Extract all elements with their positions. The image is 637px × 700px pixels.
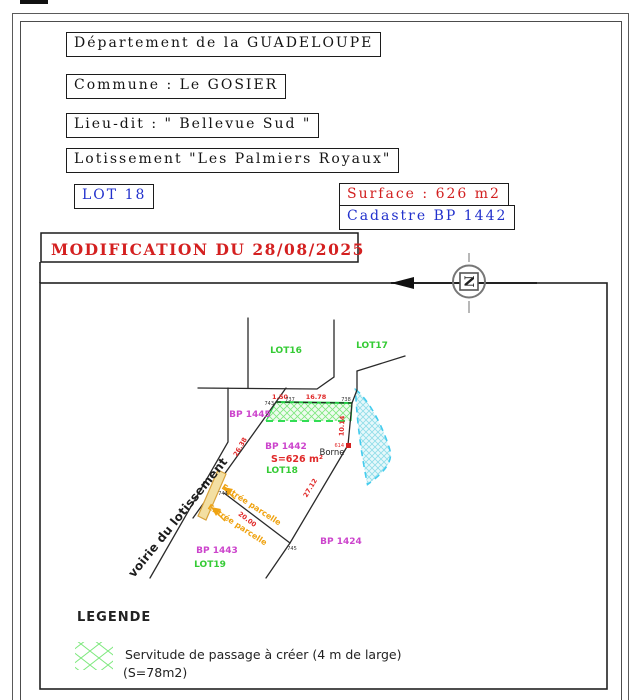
label-lot18: LOT18 <box>266 466 298 476</box>
legend-title: LEGENDE <box>77 610 151 625</box>
borne-marker <box>346 443 351 448</box>
label-bp1445: BP 1445 <box>229 410 271 420</box>
dim-16-78: 16.78 <box>306 393 327 401</box>
north-letter: N <box>460 276 475 288</box>
legend-servitude-swatch <box>75 642 113 670</box>
plan-svg: MODIFICATION DU 28/08/2025 N <box>0 0 637 700</box>
dim-10-14: 10.14 <box>337 415 346 436</box>
point-743: 743 <box>264 401 274 407</box>
point-614: 614 <box>334 443 344 449</box>
hatched-zone-cyan <box>356 390 391 485</box>
label-lot19: LOT19 <box>194 560 226 570</box>
label-bp1424: BP 1424 <box>320 537 362 547</box>
dim-26-38: 26.38 <box>232 436 249 458</box>
point-745: 745 <box>287 546 297 552</box>
point-744: 744 <box>218 491 228 497</box>
label-bp1442: BP 1442 <box>265 442 307 452</box>
legend-servitude-text: Servitude de passage à créer (4 m de lar… <box>125 647 402 662</box>
label-borne: Borne <box>320 448 345 458</box>
north-arrow-icon: N <box>391 253 537 313</box>
label-bp1443: BP 1443 <box>196 546 238 556</box>
point-738: 738 <box>341 397 351 403</box>
legend-servitude-area: (S=78m2) <box>123 665 187 680</box>
modification-label: MODIFICATION DU 28/08/2025 <box>51 240 365 259</box>
label-lot16: LOT16 <box>270 346 302 356</box>
label-area: S=626 m² <box>271 454 323 465</box>
label-lot17: LOT17 <box>356 341 388 351</box>
dim-27-12: 27.12 <box>302 477 319 499</box>
point-737: 737 <box>285 397 295 403</box>
